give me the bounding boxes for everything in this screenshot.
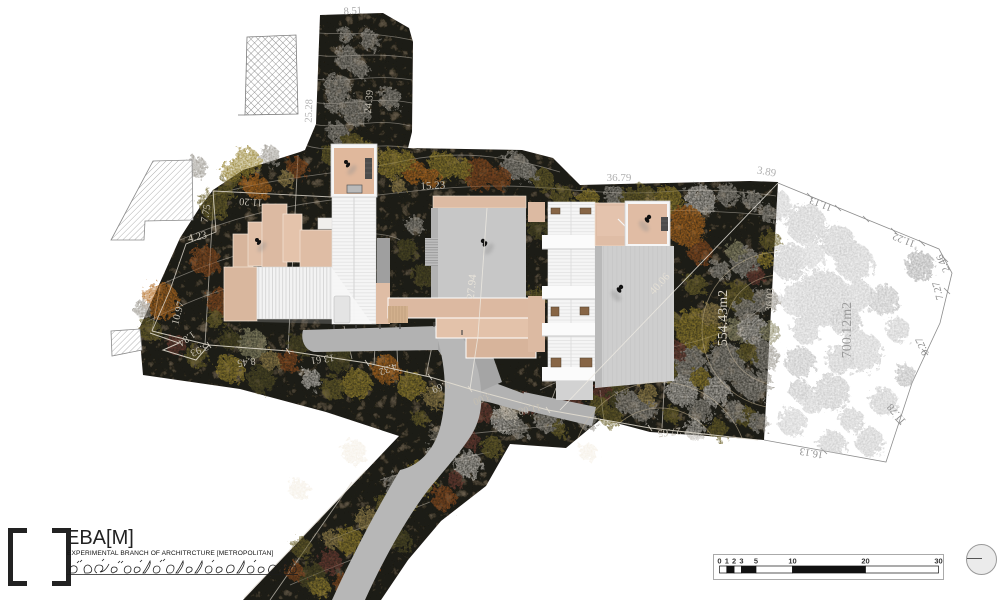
svg-text:5: 5 [754,557,758,566]
svg-text:1: 1 [725,557,729,566]
svg-text:2.46: 2.46 [935,252,953,273]
svg-text:700.12m2: 700.12m2 [840,302,855,358]
svg-text:15.23: 15.23 [420,179,446,192]
svg-text:0: 0 [717,557,721,566]
svg-text:554.43m2: 554.43m2 [716,290,731,346]
svg-text:36.03: 36.03 [764,288,777,312]
svg-text:11.22: 11.22 [891,230,917,249]
svg-text:30: 30 [934,557,942,566]
svg-text:3: 3 [739,557,743,566]
svg-text:3.89: 3.89 [756,164,778,179]
svg-text:8.51: 8.51 [343,5,362,17]
svg-text:20: 20 [861,557,869,566]
svg-text:25.28: 25.28 [304,99,316,123]
svg-text:10: 10 [788,557,796,566]
svg-text:2: 2 [732,557,736,566]
svg-text:27.94: 27.94 [465,273,479,299]
svg-text:36.79: 36.79 [607,172,632,184]
svg-text:7.27: 7.27 [931,280,946,301]
svg-text:11.20: 11.20 [239,195,263,208]
